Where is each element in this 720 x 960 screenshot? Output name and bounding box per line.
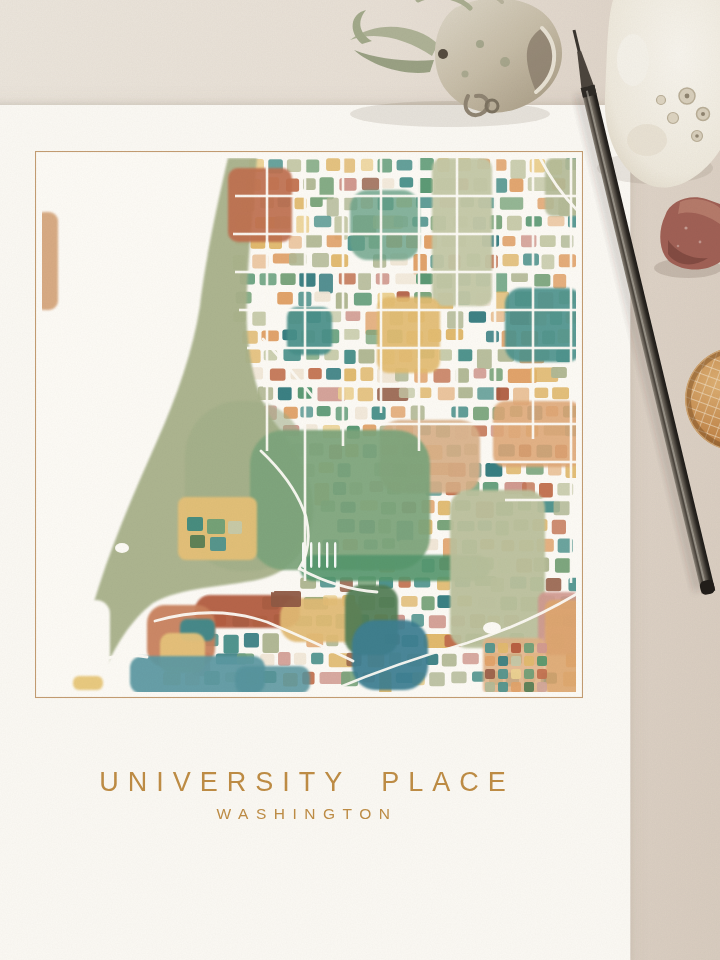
pen-barrel <box>581 85 716 594</box>
pen-body <box>567 28 716 595</box>
plant-dark-spot <box>438 49 448 59</box>
map-canvas <box>35 151 583 699</box>
state-subtitle: WASHINGTON <box>0 805 614 823</box>
pen-highlight <box>586 90 706 585</box>
plant-speck <box>476 40 484 48</box>
pen-tip-cone <box>573 50 594 90</box>
watercolor-map-artwork <box>35 151 583 699</box>
plant-speck2 <box>500 57 510 67</box>
plant-speck3 <box>462 71 469 78</box>
metal-pen <box>540 20 720 620</box>
product-photo-scene: UNIVERSITY PLACE WASHINGTON <box>0 0 720 960</box>
city-title: UNIVERSITY PLACE <box>0 768 614 798</box>
pen-lead-tip <box>573 30 582 54</box>
plant-leaf-curl <box>353 10 372 44</box>
print-title-block: UNIVERSITY PLACE WASHINGTON <box>0 768 614 823</box>
plant-leaf-lower <box>354 50 434 73</box>
